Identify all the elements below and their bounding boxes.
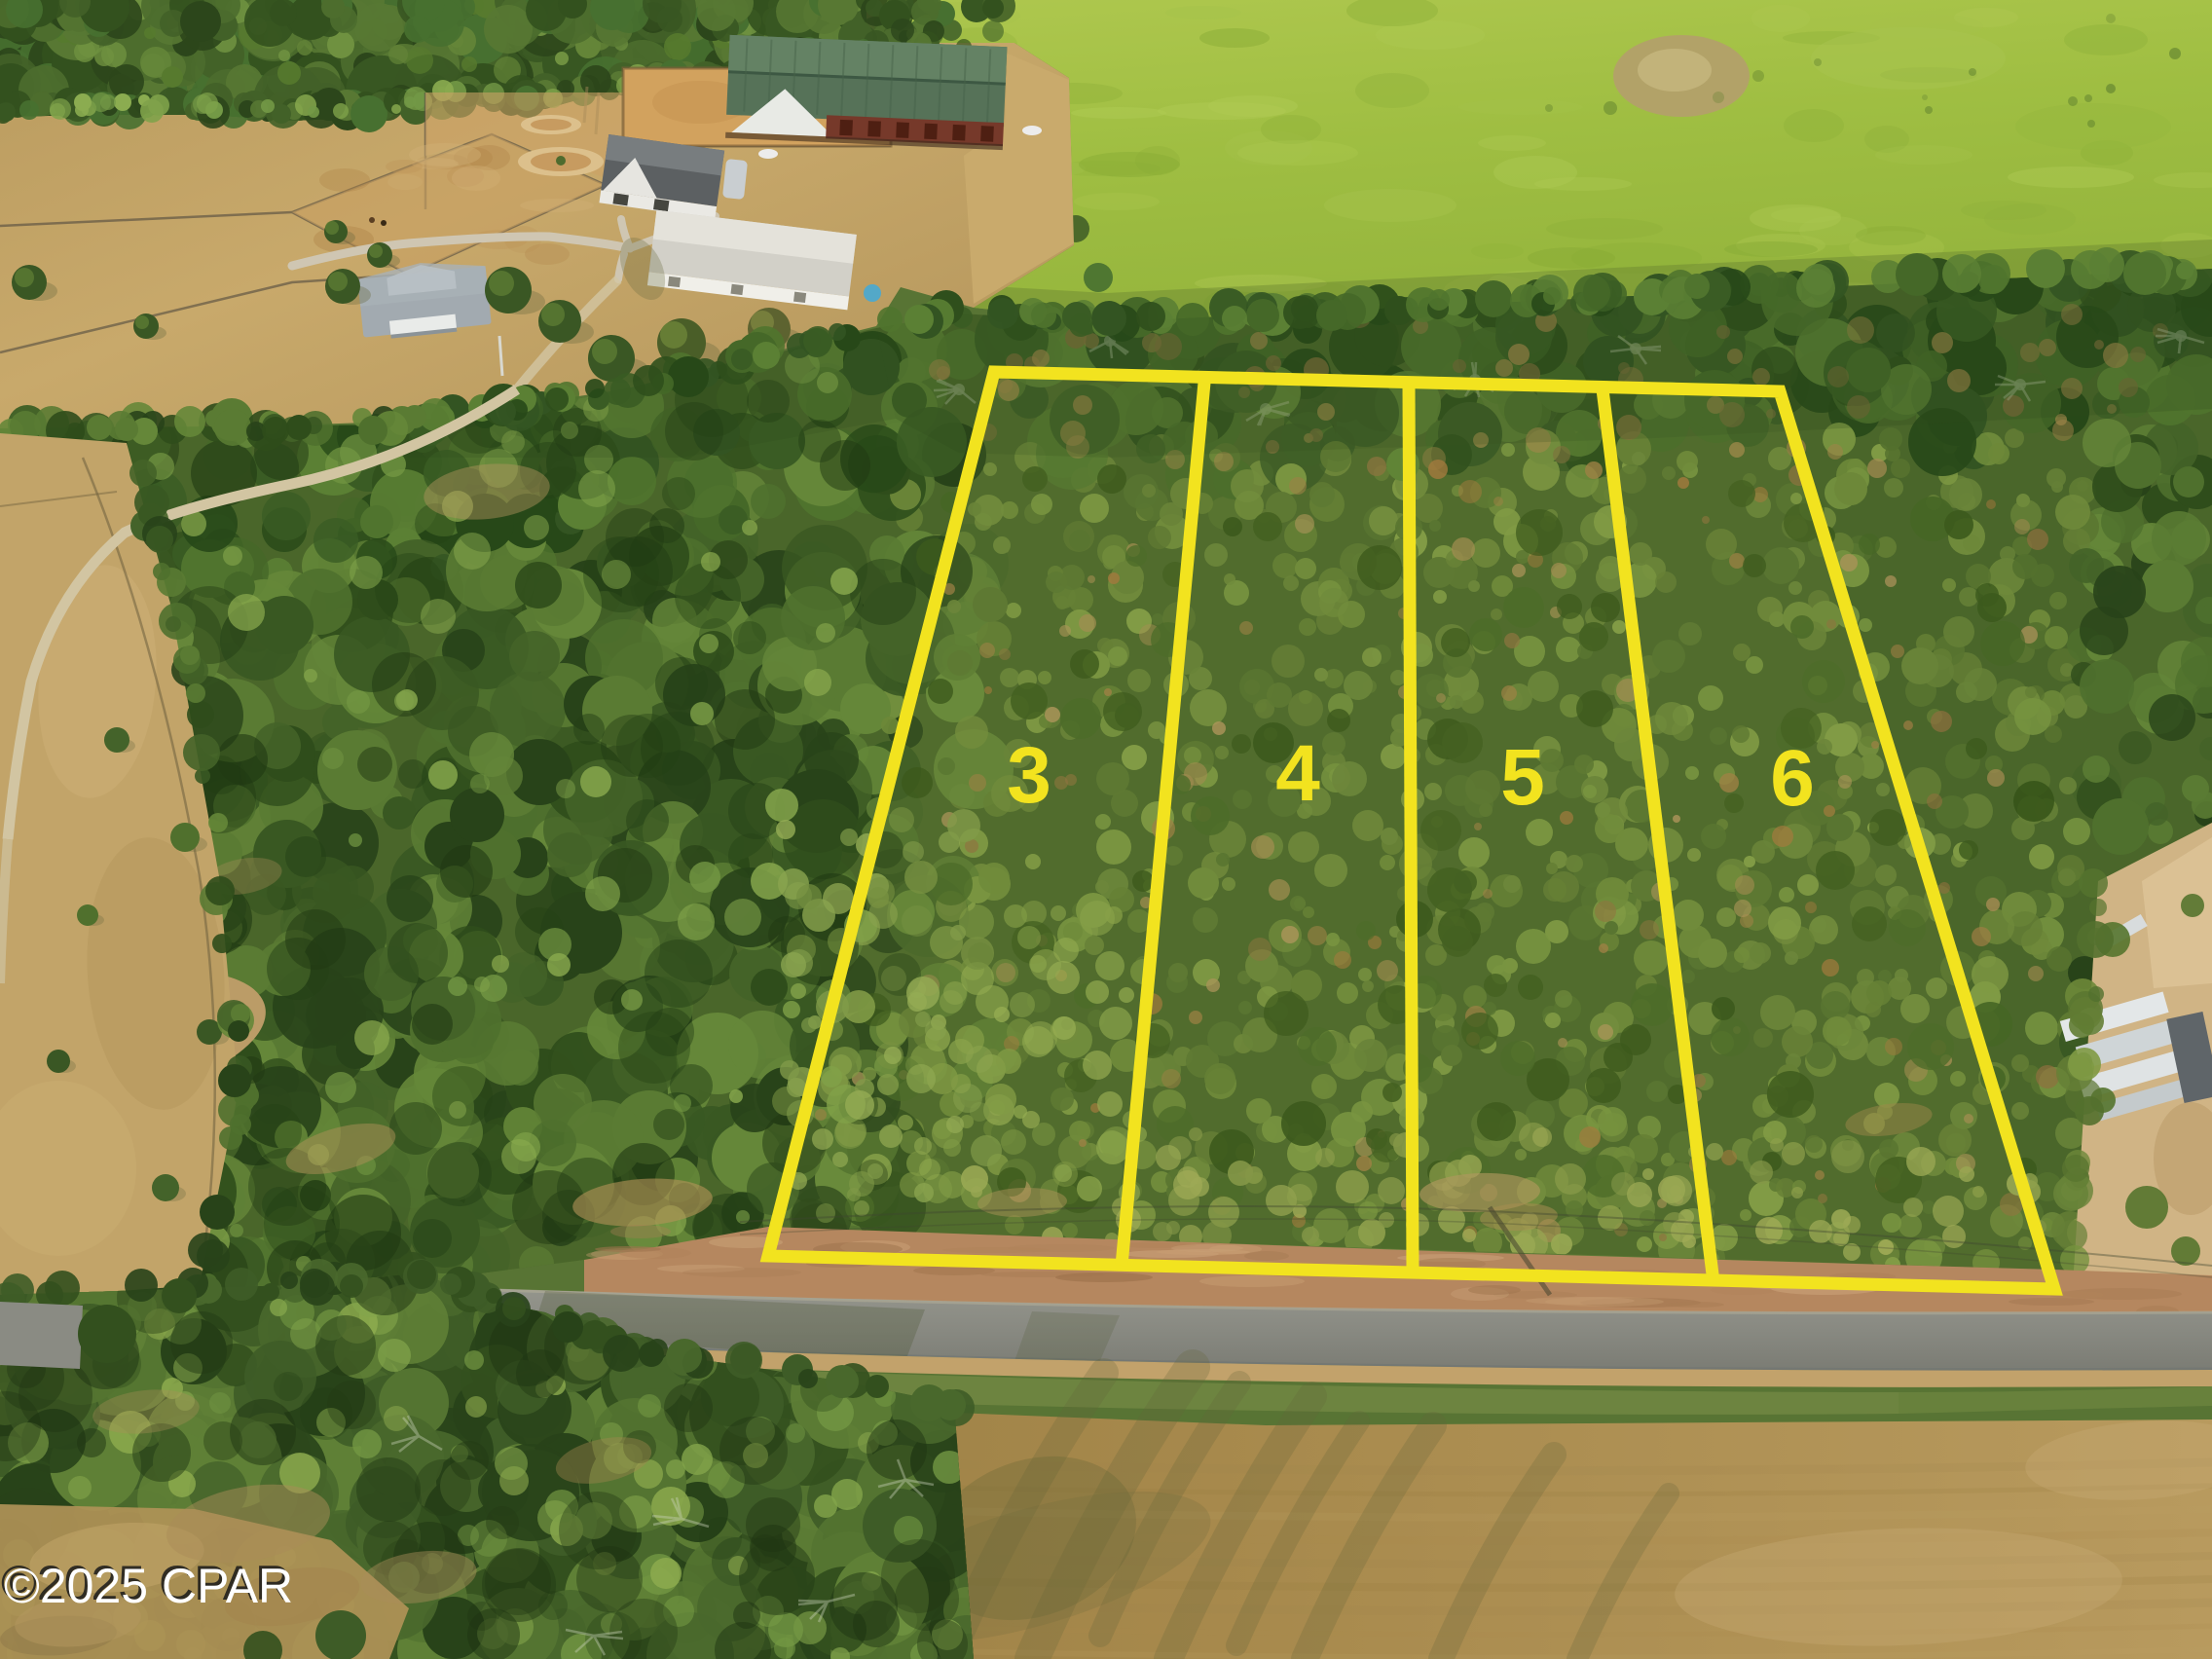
svg-text:©2025 CPAR: ©2025 CPAR — [4, 1559, 293, 1613]
svg-text:4: 4 — [1275, 729, 1320, 818]
svg-text:3: 3 — [1007, 731, 1051, 820]
svg-text:6: 6 — [1770, 734, 1815, 823]
svg-text:5: 5 — [1500, 733, 1545, 822]
